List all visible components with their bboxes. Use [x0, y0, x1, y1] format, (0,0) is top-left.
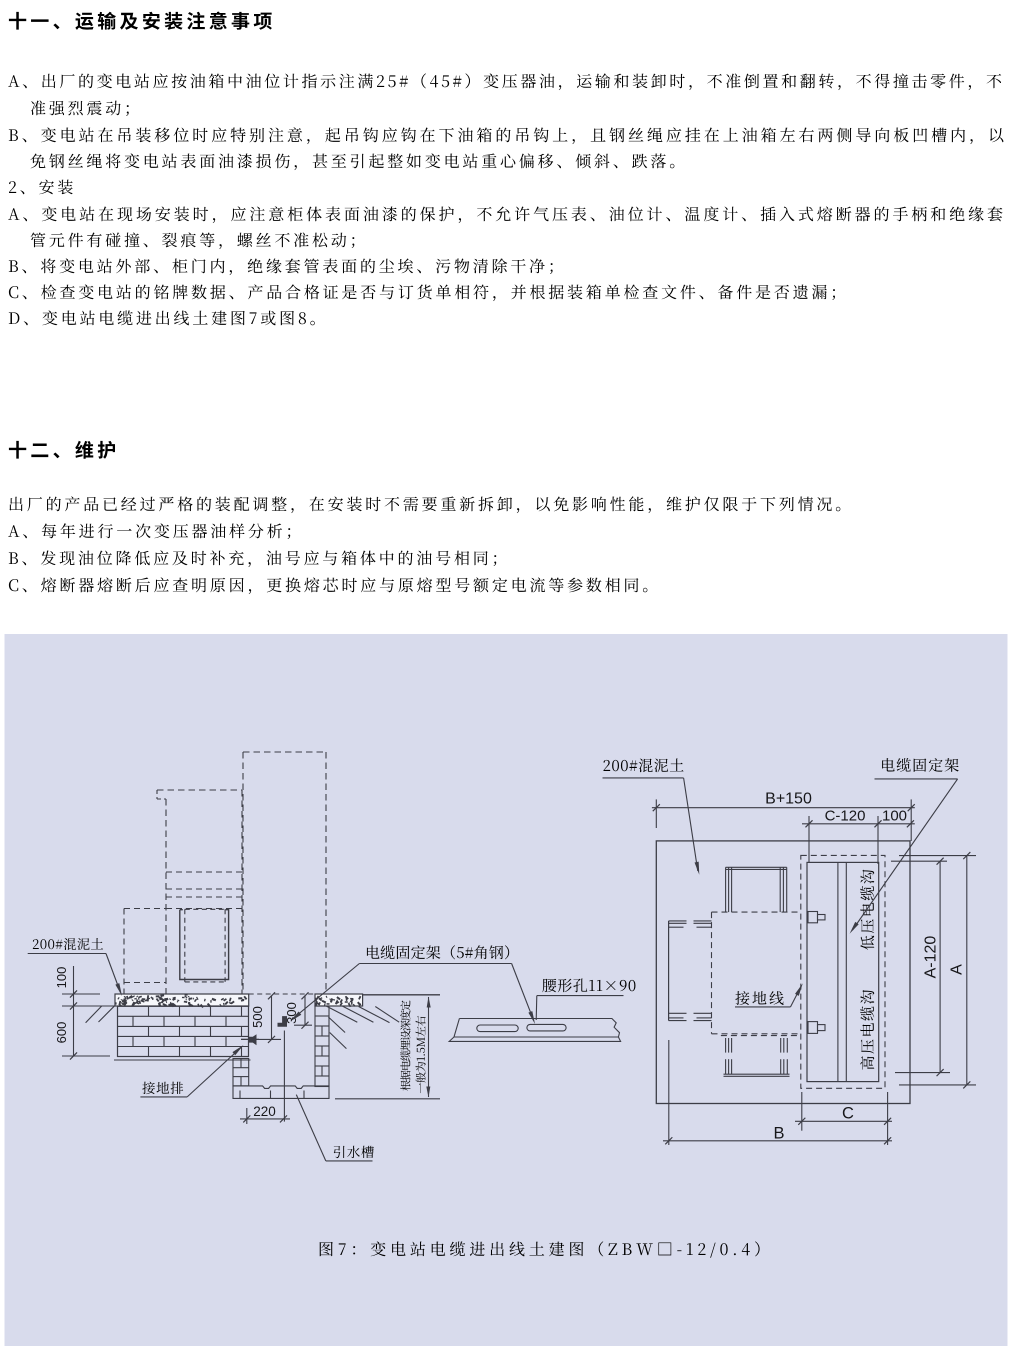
svg-text:600: 600: [54, 1022, 69, 1044]
svg-text:C: C: [842, 1105, 854, 1123]
svg-text:100: 100: [54, 967, 69, 989]
svg-text:100: 100: [882, 808, 907, 825]
svg-text:C-120: C-120: [825, 808, 866, 825]
svg-text:500: 500: [250, 1006, 265, 1028]
svg-text:B+150: B+150: [765, 791, 812, 808]
svg-text:B: B: [773, 1125, 784, 1143]
svg-text:220: 220: [253, 1104, 276, 1119]
svg-text:A: A: [949, 964, 966, 975]
svg-text:A-120: A-120: [923, 936, 940, 979]
